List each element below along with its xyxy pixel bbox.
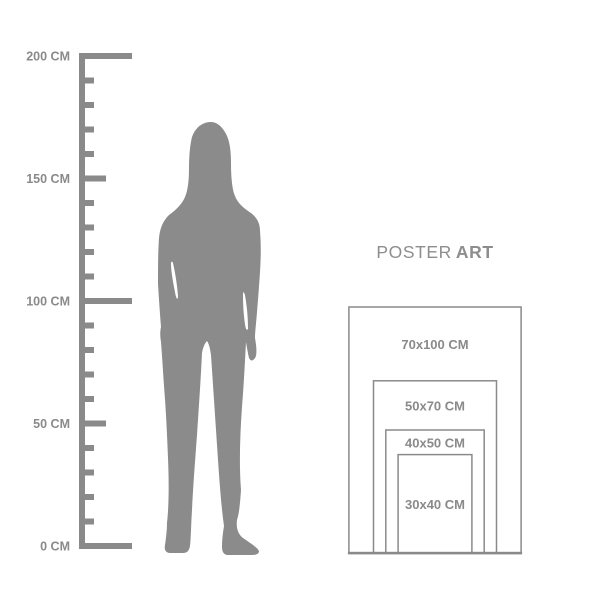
ruler-tick: [79, 543, 132, 549]
ruler-label: 150 CM: [26, 172, 70, 186]
ruler-tick: [79, 249, 94, 255]
poster-size-chart: 70x100 CM50x70 CM40x50 CM30x40 CM: [348, 307, 522, 554]
ruler-tick: [79, 494, 94, 500]
ruler-tick: [79, 445, 94, 451]
ruler-label: 200 CM: [26, 50, 70, 64]
ruler-tick: [79, 323, 94, 329]
size-chart-baseline: [348, 552, 522, 555]
title-word-art: ART: [456, 242, 494, 262]
ruler-tick: [79, 78, 94, 84]
ruler-tick: [79, 176, 106, 182]
ruler-tick: [79, 470, 94, 476]
ruler-tick: [79, 151, 94, 157]
ruler-tick: [79, 274, 94, 280]
size-label: 70x100 CM: [401, 337, 468, 352]
size-label: 30x40 CM: [405, 497, 465, 512]
size-guide-canvas: 200 CM150 CM100 CM50 CM0 CM 70x100 CM50x…: [0, 0, 600, 600]
ruler-label: 0 CM: [40, 540, 70, 554]
size-label: 50x70 CM: [405, 398, 465, 413]
ruler-tick: [79, 519, 94, 525]
ruler-tick: [79, 200, 94, 206]
title-word-poster: POSTER: [376, 242, 452, 262]
ruler-label: 100 CM: [26, 295, 70, 309]
poster-art-title: POSTERART: [285, 242, 585, 263]
ruler-tick: [79, 396, 94, 402]
ruler-label: 50 CM: [33, 417, 70, 431]
size-guide-infographic: 200 CM150 CM100 CM50 CM0 CM 70x100 CM50x…: [0, 0, 600, 600]
standing-woman-silhouette-icon: [158, 122, 261, 555]
ruler-tick: [79, 421, 106, 427]
ruler-tick: [79, 53, 132, 59]
size-label: 40x50 CM: [405, 435, 465, 450]
ruler-tick: [79, 225, 94, 231]
ruler-tick: [79, 347, 94, 353]
ruler-tick: [79, 372, 94, 378]
height-ruler: 200 CM150 CM100 CM50 CM0 CM: [26, 50, 132, 554]
ruler-tick: [79, 102, 94, 108]
ruler-tick: [79, 298, 132, 304]
ruler-tick: [79, 127, 94, 133]
